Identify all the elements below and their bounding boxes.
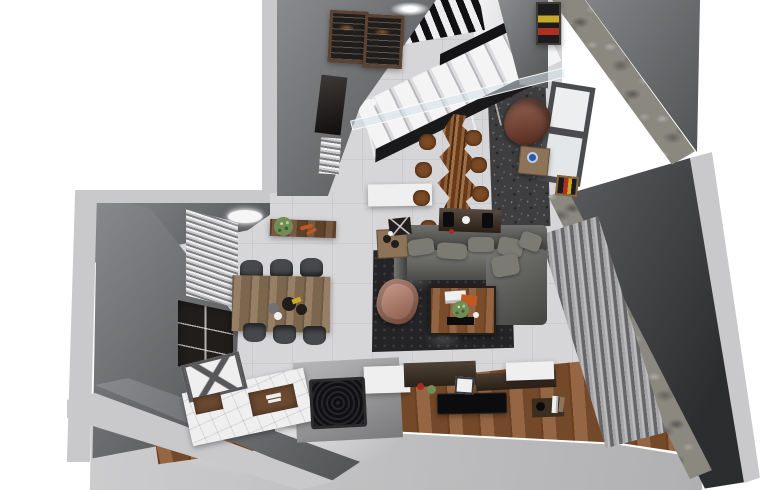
flower-decor bbox=[388, 231, 393, 236]
blue-glass-decor bbox=[527, 152, 538, 163]
sofa-cushion bbox=[436, 242, 467, 260]
dining-chair bbox=[300, 258, 323, 277]
dining-chair bbox=[273, 325, 296, 344]
small-picture-frame bbox=[555, 175, 579, 197]
photo-frame bbox=[454, 376, 474, 394]
dining-stool bbox=[465, 130, 482, 146]
ceiling-lamp bbox=[227, 209, 263, 224]
table-bowl bbox=[296, 304, 307, 315]
dining-chair bbox=[303, 326, 326, 345]
upperleft-wall-cut bbox=[262, 0, 277, 193]
wall-radiator bbox=[319, 137, 341, 174]
speaker bbox=[482, 213, 493, 228]
candlestick bbox=[383, 235, 391, 243]
sofa-cushion bbox=[468, 237, 494, 252]
dining-stool bbox=[413, 190, 430, 206]
dining-stool bbox=[415, 162, 432, 178]
dining-stool bbox=[472, 186, 489, 202]
dining-stool bbox=[470, 157, 487, 173]
table-dish-white bbox=[274, 312, 282, 320]
dining-chair bbox=[243, 323, 266, 342]
shelf-plant bbox=[274, 217, 293, 236]
hall-ceiling-lamp bbox=[390, 2, 430, 16]
candlestick bbox=[391, 240, 399, 248]
chalkboard-frame-2 bbox=[363, 14, 405, 69]
leftwing-top-wall-cut bbox=[84, 190, 270, 203]
deco-red-vase bbox=[417, 383, 424, 390]
console-decor bbox=[462, 216, 470, 224]
window-blinds bbox=[186, 210, 238, 309]
art-frame-top bbox=[536, 2, 561, 45]
window-pane-1 bbox=[550, 87, 590, 132]
tv-panel bbox=[437, 392, 507, 414]
dining-stool bbox=[419, 134, 436, 150]
slab-decor-red bbox=[449, 229, 454, 234]
cooktop-grill bbox=[309, 377, 368, 430]
speaker bbox=[443, 212, 454, 227]
coffee-table-tray bbox=[447, 317, 474, 325]
white-cabinet bbox=[506, 361, 555, 381]
coffee-table-plant bbox=[452, 301, 469, 318]
deco-jar bbox=[427, 385, 436, 394]
apartment-render bbox=[0, 0, 780, 490]
railing-post-cap bbox=[369, 99, 376, 106]
coffee-table-cup bbox=[473, 312, 479, 318]
speaker-hole bbox=[536, 402, 545, 411]
